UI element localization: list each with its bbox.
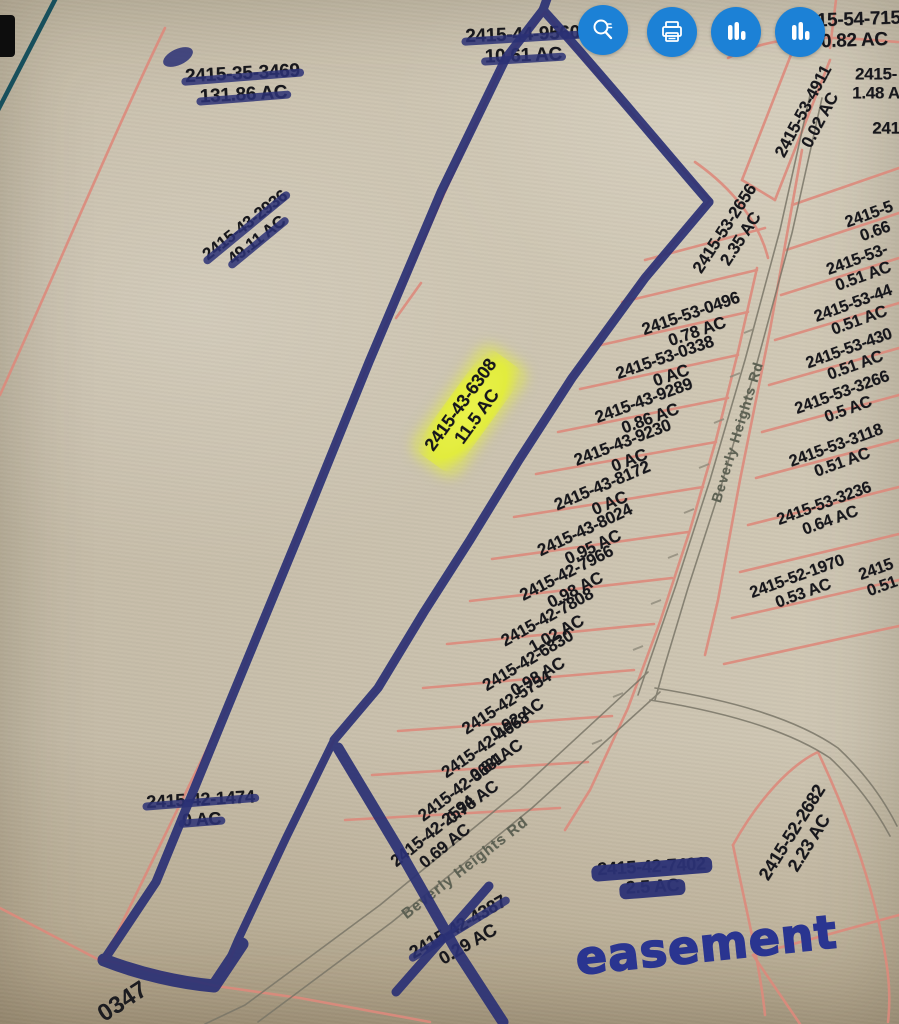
bar-chart-icon <box>788 20 812 44</box>
parcel-label: 2415-44-956010.61 AC <box>465 23 581 69</box>
window-edge-tab <box>0 15 15 57</box>
magnifier-icon <box>590 17 616 43</box>
printer-icon <box>659 19 685 45</box>
parcel-acreage: 0.82 AC <box>821 30 889 53</box>
parcel-label: 2415-42-74022.5 AC <box>597 854 707 899</box>
chart-button-b[interactable] <box>775 7 825 57</box>
parcel-label: 2415-1.48 A <box>852 65 899 102</box>
parcel-id: 241 <box>872 120 899 139</box>
chart-button-a[interactable] <box>711 7 761 57</box>
search-button[interactable] <box>578 5 628 55</box>
bar-chart-icon <box>724 20 748 44</box>
parcel-label: 2415-42-14740 AC <box>146 787 256 832</box>
map-canvas[interactable]: Beverly Heights Rd Beverly Heights Rd ea… <box>0 0 899 1024</box>
parcel-id: 2415- <box>855 65 897 84</box>
parcel-label: 2415-35-3469131.86 AC <box>185 61 302 109</box>
print-button[interactable] <box>647 7 697 57</box>
parcel-acreage: 2.5 AC <box>625 876 680 899</box>
parcel-acreage: 10.61 AC <box>484 45 562 69</box>
parcel-label: 241 <box>872 120 899 139</box>
parcel-acreage: 0 AC <box>181 809 221 831</box>
parcel-acreage: 1.48 A <box>852 84 899 103</box>
